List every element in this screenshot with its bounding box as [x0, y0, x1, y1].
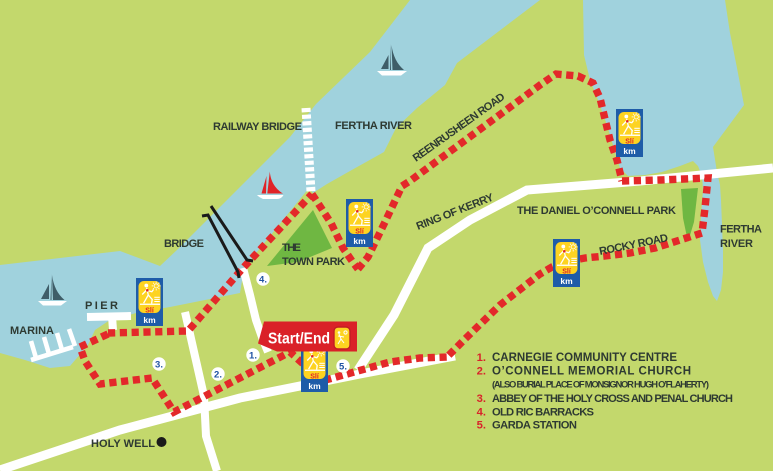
svg-text:TOWN PARK: TOWN PARK [282, 256, 345, 268]
svg-text:2.: 2. [214, 370, 222, 381]
svg-text:FERTHA RIVER: FERTHA RIVER [335, 120, 412, 132]
svg-text:THE: THE [282, 242, 301, 254]
svg-text:2.: 2. [477, 366, 486, 378]
svg-text:RAILWAY BRIDGE: RAILWAY BRIDGE [213, 121, 302, 133]
svg-text:5.: 5. [339, 362, 347, 373]
svg-text:5.: 5. [477, 420, 486, 432]
svg-text:4.: 4. [477, 407, 486, 419]
svg-text:(ALSO BURIAL PLACE OF MONSIGNO: (ALSO BURIAL PLACE OF MONSIGNOR HUGH O’F… [492, 379, 709, 390]
svg-text:BRIDGE: BRIDGE [164, 238, 204, 250]
svg-text:RIVER: RIVER [720, 238, 753, 250]
svg-text:THE DANIEL O’CONNELL PARK: THE DANIEL O’CONNELL PARK [517, 205, 676, 217]
svg-text:FERTHA: FERTHA [720, 224, 762, 236]
svg-text:OLD RIC BARRACKS: OLD RIC BARRACKS [492, 407, 595, 419]
svg-text:ABBEY OF THE HOLY CROSS AND PE: ABBEY OF THE HOLY CROSS AND PENAL CHURCH [492, 393, 733, 405]
svg-text:PIER: PIER [85, 300, 118, 312]
svg-text:CARNEGIE COMMUNITY CENTRE: CARNEGIE COMMUNITY CENTRE [492, 352, 677, 364]
svg-text:4.: 4. [259, 275, 267, 286]
svg-text:1.: 1. [249, 351, 257, 362]
svg-text:HOLY WELL: HOLY WELL [91, 438, 155, 450]
svg-text:MARINA: MARINA [10, 325, 54, 337]
svg-text:O’CONNELL MEMORIAL CHURCH: O’CONNELL MEMORIAL CHURCH [492, 366, 691, 378]
svg-text:1.: 1. [477, 352, 486, 364]
svg-text:3.: 3. [155, 360, 163, 371]
svg-text:Start/End: Start/End [268, 331, 330, 348]
svg-text:3.: 3. [477, 393, 486, 405]
svg-text:GARDA STATION: GARDA STATION [492, 420, 577, 432]
